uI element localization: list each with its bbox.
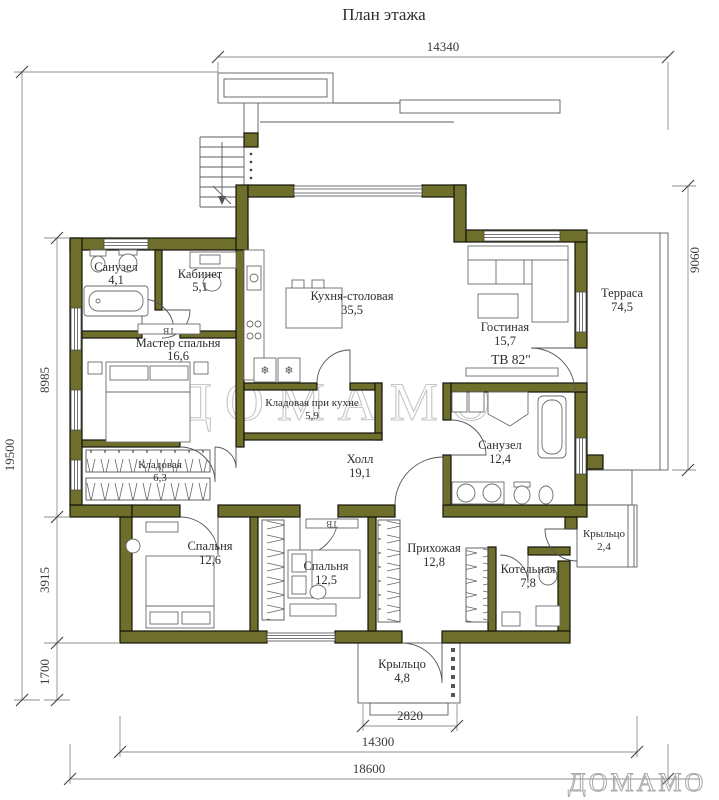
room-label-kitchen: Кухня-столовая: [311, 289, 394, 303]
furniture-entry-hall: [378, 520, 488, 622]
room-label-bedroom2: Спальня: [303, 559, 348, 573]
tv-82: [466, 368, 558, 376]
watermark-corner: ДОМАМО: [568, 768, 706, 797]
room-area-bathroom2: 12,4: [489, 452, 512, 466]
tv-label-master: ТВ: [163, 326, 175, 336]
tv-82-label: ТВ 82": [491, 352, 531, 367]
dim-bottom-porch-value: 2820: [397, 708, 423, 723]
dim-top-value: 14340: [427, 39, 460, 54]
furniture-bedroom1: [126, 522, 214, 628]
fridge-icon: ❄: [260, 365, 269, 377]
furniture-kitchen: ❄ ❄: [244, 250, 342, 382]
room-label-boiler: Котельная: [501, 562, 556, 576]
dim-left-total-value: 19500: [2, 439, 17, 472]
room-area-storage: 6,3: [153, 472, 167, 484]
room-label-hall: Холл: [347, 452, 374, 466]
porch-top-outline: [218, 73, 560, 122]
dim-left-chain-2: 3915: [37, 567, 52, 593]
room-area-bedroom1: 12,6: [199, 553, 221, 567]
terrace-outline: [577, 233, 668, 567]
room-label-master: Мастер спальня: [136, 336, 221, 350]
dimension-right: 9060: [672, 180, 702, 476]
room-label-terrace: Терраса: [601, 286, 643, 300]
room-area-bathroom1: 4,1: [108, 273, 124, 287]
room-label-living: Гостиная: [481, 320, 530, 334]
room-label-porch-side: Крыльцо: [583, 528, 626, 540]
room-area-hall: 19,1: [349, 466, 371, 480]
room-area-boiler: 7,8: [520, 576, 536, 590]
room-label-bathroom1: Санузел: [94, 260, 138, 274]
floor-plan-page: План этажа ДОМАМО: [0, 0, 719, 800]
room-label-bathroom2: Санузел: [478, 438, 522, 452]
room-label-pantry: Кладовая при кухне: [265, 397, 359, 409]
room-label-entry: Прихожая: [407, 541, 461, 555]
dim-bottom-total-value: 18600: [353, 761, 386, 776]
room-area-living: 15,7: [494, 334, 516, 348]
page-title: План этажа: [342, 5, 426, 24]
dim-left-chain-1: 8985: [37, 367, 52, 393]
room-label-study: Кабинет: [178, 267, 223, 281]
tv-label-bedroom2: ТВ: [326, 519, 338, 529]
room-area-terrace: 74,5: [611, 300, 633, 314]
room-area-kitchen: 35,5: [341, 303, 363, 317]
room-label-bedroom1: Спальня: [187, 539, 232, 553]
room-label-storage: Кладовая: [138, 459, 182, 471]
room-area-porch-back: 4,8: [394, 671, 410, 685]
dim-left-chain-3: 1700: [37, 659, 52, 685]
dimension-top: 14340: [212, 39, 674, 130]
dim-bottom-inner-value: 14300: [362, 734, 395, 749]
room-area-bedroom2: 12,5: [315, 573, 337, 587]
room-area-porch-side: 2,4: [597, 541, 611, 553]
room-label-porch-back: Крыльцо: [378, 657, 426, 671]
room-area-study: 5,1: [192, 280, 208, 294]
furniture-storage: [86, 450, 210, 500]
room-area-pantry: 5,9: [305, 410, 319, 422]
room-area-master: 16,6: [167, 349, 189, 363]
fridge-icon: ❄: [284, 365, 293, 377]
room-area-entry: 12,8: [423, 555, 445, 569]
dim-right-value: 9060: [687, 247, 702, 273]
floor-plan-drawing: План этажа ДОМАМО: [0, 0, 719, 800]
